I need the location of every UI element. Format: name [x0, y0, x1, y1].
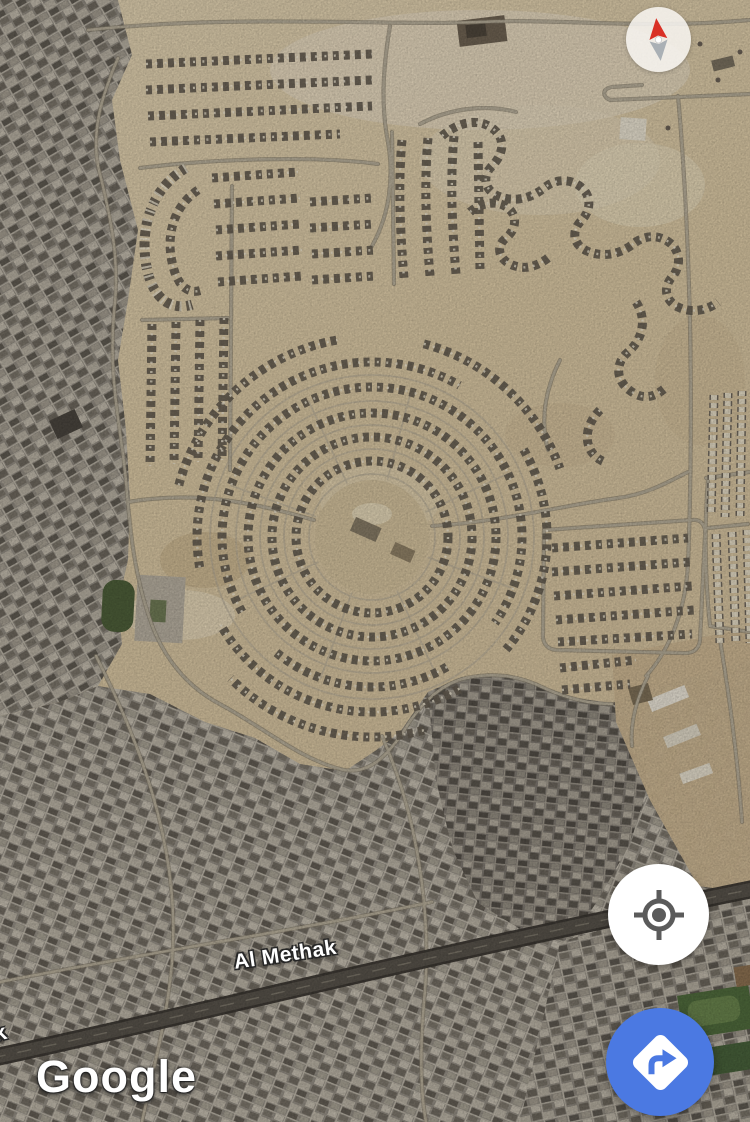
maps-app-screen: Al Methak k Google: [0, 0, 750, 1122]
compass-icon: [626, 7, 691, 72]
directions-fab[interactable]: [606, 1008, 714, 1116]
google-logo: Google: [36, 1051, 197, 1103]
compass-button[interactable]: [626, 7, 691, 72]
my-location-icon: [633, 889, 685, 941]
directions-icon: [630, 1032, 691, 1093]
my-location-button[interactable]: [608, 864, 709, 965]
